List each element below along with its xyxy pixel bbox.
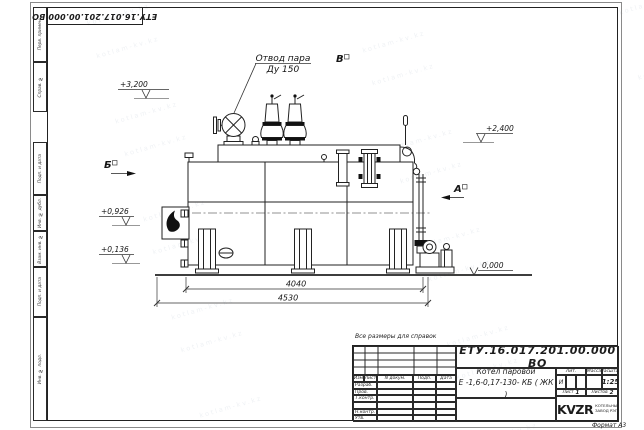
sheet-value: 1: [576, 390, 580, 396]
mass-value: [586, 375, 602, 389]
col-header-podp: Подп.: [413, 375, 436, 382]
mass-header: Масса: [586, 368, 602, 375]
side-label: Справ. №: [38, 76, 43, 97]
organization-name: КОТЕЛЬНЫЙ ЗАВОД РЭП: [595, 404, 619, 414]
row-label-razrab: Разраб.: [353, 382, 377, 389]
side-label: Перв. примен.: [38, 18, 43, 50]
side-cell-vzam-inv: Взам. инв. №: [33, 231, 47, 267]
side-strip-gap: [33, 112, 47, 142]
sign-cell: [413, 382, 436, 389]
sign-cell: [377, 415, 413, 422]
sign-cell: [377, 395, 413, 402]
drawing-sheet: kotlam-kv.kz kotlam-kv.kz kotlam-kv.kz k…: [0, 0, 644, 430]
side-label: Подп. и дата: [38, 154, 43, 183]
row-label-tkontr: Т.контр.: [353, 395, 377, 402]
side-label: Взам. инв. №: [38, 234, 43, 264]
lit-value: И: [556, 375, 566, 389]
sign-cell: [436, 395, 456, 402]
sheets-value: 2: [610, 390, 614, 396]
row-label-blank: [353, 402, 377, 409]
sign-cell: [436, 382, 456, 389]
format-label: Формат А3: [592, 422, 638, 429]
sheet-label: Лист: [563, 390, 574, 395]
title-doc-number: ЕТУ.16.017.201.00.000 ВО: [456, 346, 619, 368]
row-label-utv: Утв.: [353, 415, 377, 422]
revision-grid: [353, 346, 456, 375]
col-header-izm: Изм: [353, 375, 364, 382]
col-header-data: Дата: [436, 375, 456, 382]
sign-cell: [377, 402, 413, 409]
col-header-doc: N докум.: [377, 375, 413, 382]
scale-value: 1:25: [602, 375, 619, 389]
doc-number-top-box: ЕТУ.16.017.201.00.000 ВО: [47, 7, 143, 25]
sign-cell: [377, 382, 413, 389]
organization-cell: KVZR КОТЕЛЬНЫЙ ЗАВОД РЭП: [556, 396, 619, 422]
side-label: Инв. № дубл.: [38, 198, 43, 228]
side-cell-podp-data-1: Подп. и дата: [33, 142, 47, 195]
side-cell-inv-podl: Инв. № подл.: [33, 317, 47, 421]
sign-cell: [413, 395, 436, 402]
product-model: Е -1,6-0,17-130- КБ ( ЖК ): [457, 377, 555, 398]
col-header-list: Лист: [364, 375, 377, 382]
product-name: Котел паровой: [477, 368, 536, 377]
frame-side-strip: Перв. примен. Справ. № Подп. и дата Инв.…: [33, 7, 47, 421]
side-cell-sprav-no: Справ. №: [33, 62, 47, 112]
product-name-cell: Котел паровой Е -1,6-0,17-130- КБ ( ЖК ): [456, 368, 556, 398]
lit-cell-2: [566, 375, 576, 389]
side-label: Подп. и дата: [38, 277, 43, 306]
lit-header: Лит.: [556, 368, 586, 375]
lit-cell-3: [576, 375, 586, 389]
sign-cell: [413, 402, 436, 409]
side-cell-podp-data-2: Подп. и дата: [33, 267, 47, 317]
scale-header: Масштаб: [602, 368, 619, 375]
org-line2: ЗАВОД РЭП: [595, 409, 619, 414]
doc-number-rotated: ЕТУ.16.017.201.00.000 ВО: [32, 12, 157, 21]
kvzr-logo-text: KVZR: [557, 402, 593, 417]
reference-note: Все размеры для справок: [355, 333, 436, 340]
sign-cell: [436, 415, 456, 422]
side-label: Инв. № подл.: [38, 354, 43, 384]
side-cell-inv-dubl: Инв. № дубл.: [33, 195, 47, 231]
sign-cell: [413, 415, 436, 422]
sheets-cell: Листов 2: [586, 389, 619, 396]
empty-cell: [456, 398, 556, 422]
sheet-cell: Лист 1: [556, 389, 586, 396]
sheets-label: Листов: [592, 390, 608, 395]
revision-grid-lines: [354, 346, 455, 375]
sign-cell: [436, 402, 456, 409]
title-block: Изм Лист N докум. Подп. Дата Разраб. Про…: [352, 345, 618, 421]
